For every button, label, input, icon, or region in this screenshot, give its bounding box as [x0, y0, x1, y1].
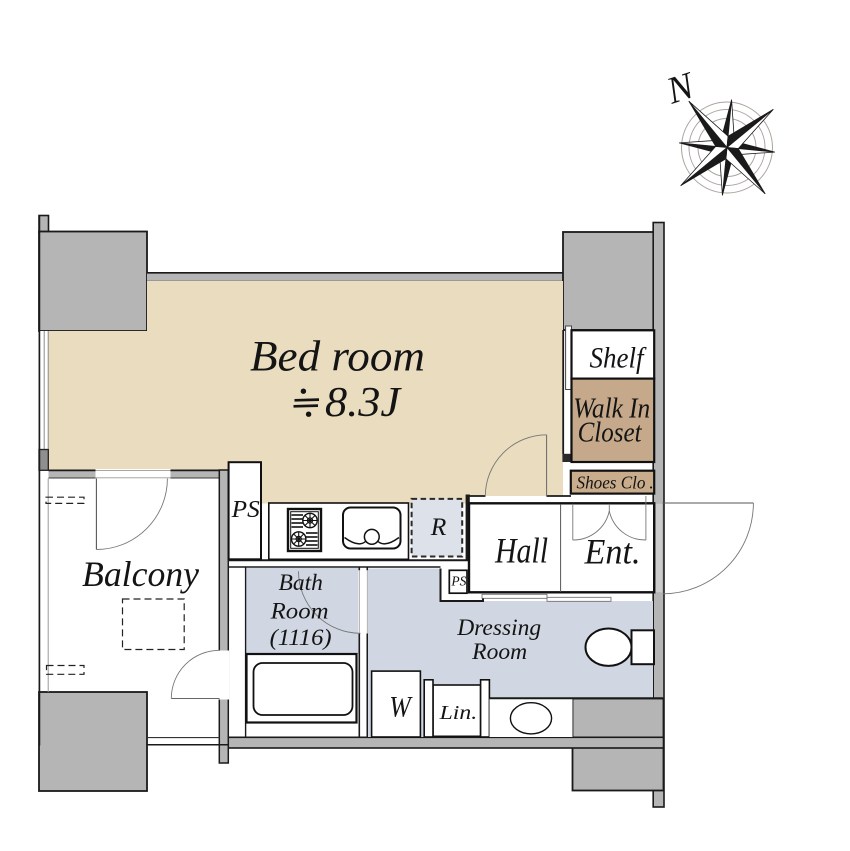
svg-text:PS: PS: [231, 497, 260, 523]
svg-text:Bath: Bath: [279, 570, 323, 596]
svg-text:R: R: [430, 512, 447, 541]
svg-text:(1116): (1116): [270, 625, 332, 651]
svg-text:Ent.: Ent.: [584, 532, 641, 572]
svg-text:Balcony: Balcony: [82, 554, 199, 594]
svg-text:Bed room: Bed room: [250, 334, 425, 381]
svg-text:Room: Room: [471, 639, 527, 665]
svg-text:Closet: Closet: [578, 418, 643, 449]
svg-text:.: .: [649, 473, 653, 493]
svg-text:Hall: Hall: [494, 531, 548, 571]
svg-text:8.3J: 8.3J: [325, 380, 402, 426]
svg-text:Shoes Clo: Shoes Clo: [577, 473, 646, 493]
svg-text:W: W: [389, 691, 413, 724]
svg-text:Shelf: Shelf: [590, 342, 647, 375]
svg-text:Dressing: Dressing: [456, 615, 541, 641]
svg-text:PS: PS: [450, 574, 466, 589]
svg-text:Room: Room: [270, 598, 329, 624]
svg-text:Lin.: Lin.: [438, 702, 477, 724]
